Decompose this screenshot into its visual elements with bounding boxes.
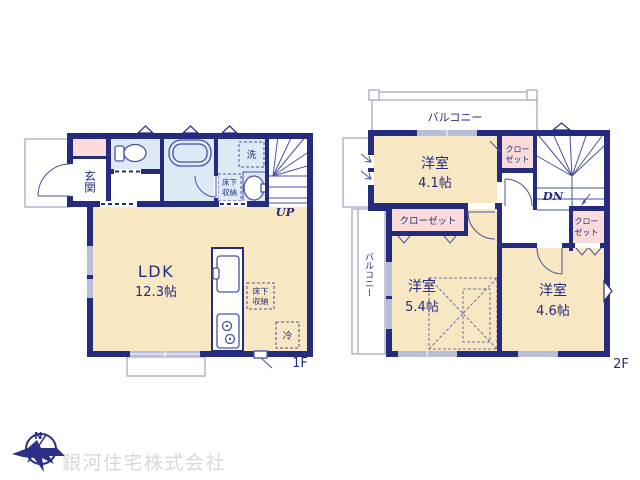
window [386,262,392,296]
room-label-54: 洋室 [408,278,436,295]
window [518,351,558,357]
toilet-icon [115,145,146,162]
kitchen-counter [212,248,243,351]
room-label-ldk: LDK [138,262,174,281]
laundry-label: 洗 [247,149,257,161]
floorplan-1f: 玄関 洗 床下 収納 UP LDK 12.3帖 床下 収納 冷 1F [25,126,313,376]
fridge-label: 冷 [283,330,293,342]
terrace [127,357,205,376]
genkan-label: 玄関 [83,169,97,193]
window [87,279,93,298]
underfloor-storage-label: 収納 [253,296,269,306]
floor-plan-page: 玄関 洗 床下 収納 UP LDK 12.3帖 床下 収納 冷 1F [0,0,640,480]
room-46 [502,248,604,351]
vent-triangle [138,126,153,133]
room-label-46: 洋室 [539,282,567,299]
company-name: 銀河住宅株式会社 [62,452,226,474]
shoe-cabinet [73,137,106,157]
closet-label: クロー [506,145,530,154]
underfloor-storage-label: 床下 [222,177,237,187]
underfloor-storage-label: 収納 [222,187,237,197]
compass-n-label: N [34,431,42,442]
stairs-down-arrow [581,194,590,206]
balcony-left-label: バルコニー [363,252,374,297]
company-logo: N 銀河住宅株式会社 [12,431,226,474]
dn-label: DN [542,189,564,203]
vent-triangle [183,126,198,133]
room41-door-arc [505,179,532,206]
closet-label: ゼット [506,154,530,164]
closet-right [573,211,604,243]
room-size-46: 4.6帖 [536,304,570,319]
window [87,246,93,275]
room-size-41: 4.1帖 [418,176,452,191]
room-size-ldk: 12.3帖 [135,285,177,300]
floorplan-2f: バルコニー バルコニー 洋室 4.1帖 クロー ゼット クローゼット クロー ゼ… [343,90,629,372]
room-size-54: 5.4帖 [405,300,439,315]
floor-plan-canvas: 玄関 洗 床下 収納 UP LDK 12.3帖 床下 収納 冷 1F [0,0,640,480]
eaves-outline [343,138,372,207]
stairs-1f-icon [269,136,307,198]
floor1-label: 1F [292,356,308,371]
balcony-top-label: バルコニー [428,111,483,124]
underfloor-storage-label: 床下 [253,286,269,296]
closet-label: ゼット [575,227,599,237]
room-ldk [93,207,307,351]
closet-label: クロー [575,217,599,226]
vent-triangle [222,126,237,133]
vent-triangle [553,123,570,130]
window [386,299,392,329]
bird-icon [12,440,65,472]
floor2-label: 2F [613,357,629,372]
closet-label: クローゼット [399,215,456,227]
room-label-41: 洋室 [421,155,449,172]
up-label: UP [276,205,295,219]
